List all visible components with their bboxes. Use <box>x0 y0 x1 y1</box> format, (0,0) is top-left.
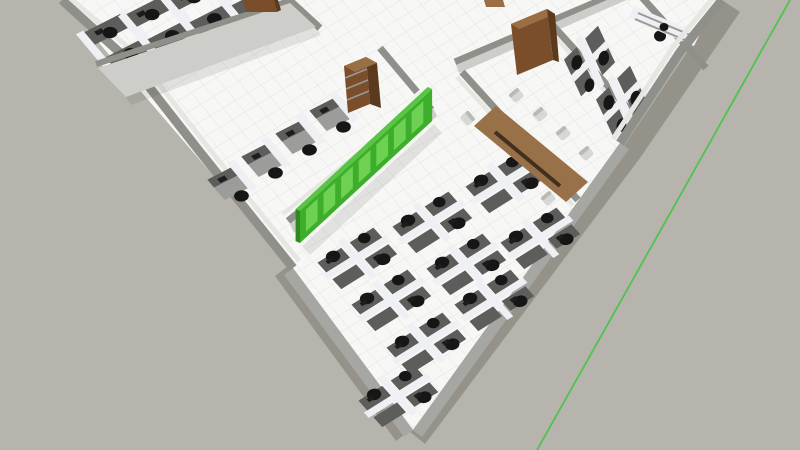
model-viewport[interactable] <box>0 0 800 450</box>
top-edge-cabinet-2[interactable] <box>484 0 505 7</box>
bookshelf[interactable] <box>344 57 381 113</box>
top-edge-cabinet[interactable] <box>243 0 281 12</box>
3d-scene-canvas[interactable] <box>0 0 800 450</box>
office-chair[interactable] <box>660 23 669 31</box>
green-wall-end <box>296 205 300 247</box>
